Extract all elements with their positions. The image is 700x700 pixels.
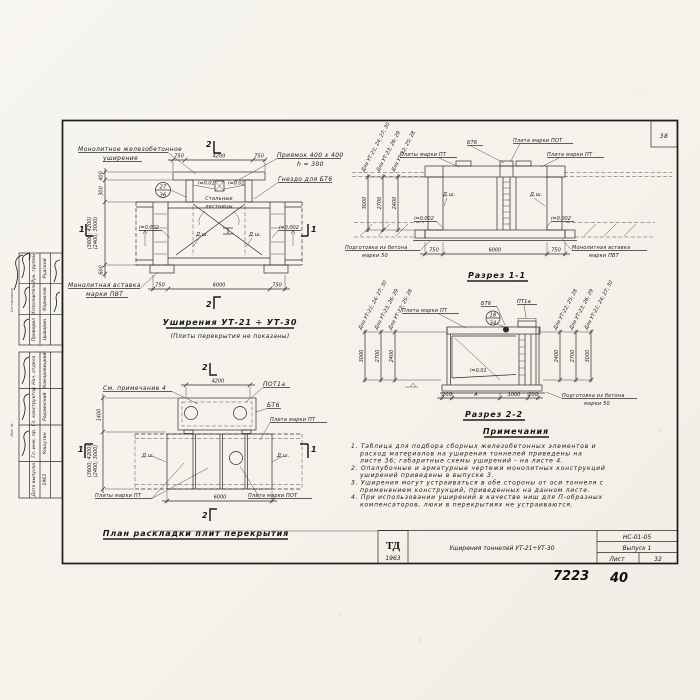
- callout-steel-stairs: Стальные: [205, 196, 233, 202]
- note-line-1b: расход материалов на уширения тоннелей п…: [359, 450, 583, 457]
- dim-bot-right: 750: [272, 283, 282, 289]
- dim-top-left: 750: [174, 154, 184, 160]
- elevation-title: Уширения УТ-21 ÷ УТ-30: [163, 318, 298, 327]
- margin-edge-label-2: Инв. №: [10, 423, 14, 436]
- s1-callout-insert: Монолитная вставка: [572, 245, 630, 251]
- s1-rot-value-2: 2400: [392, 197, 398, 210]
- callout-monolithic-widening: Монолитное железобетонное: [78, 146, 182, 153]
- note-line-2b: уширений приведены в выпуске 3.: [359, 472, 494, 479]
- s2-callout-prep-2: марки 50: [584, 401, 610, 407]
- s2-rot-value-right-0: 2400: [554, 350, 560, 363]
- s1-rot-value-1: 2700: [377, 197, 383, 210]
- s2-detail-num: 18: [490, 313, 497, 319]
- joint-arrow-left: [143, 230, 147, 246]
- s1-callout-insert-2: марки ПВТ: [589, 253, 620, 259]
- signature-mark: [54, 292, 60, 312]
- signature-mark: [14, 255, 23, 290]
- plan-dim-top: 4200: [212, 379, 225, 385]
- bt6-anchor: [503, 327, 509, 333]
- s1-joint-right: Д.ш.: [529, 192, 542, 198]
- section-2-2-title: Разрез 2-2: [465, 410, 523, 419]
- margin-stamp: [14, 253, 62, 498]
- dim-v3a: (2400; 3000): [93, 217, 99, 250]
- s1-dim-bot-right: 750: [551, 248, 561, 254]
- section-1-1-title: Разрез 1-1: [468, 271, 526, 280]
- note-line-1: 1. Таблица для подбора сборных железобет…: [351, 442, 596, 450]
- s1-callout-prep-2: марки 50: [362, 253, 388, 259]
- plan-mark-2-top: 2: [202, 363, 208, 372]
- signature-mark: [23, 319, 29, 340]
- plan-callout-pt-bottom: Плиты марки ПТ: [95, 493, 142, 499]
- s1-joint-left: Д.ш.: [442, 192, 455, 198]
- slope-pit-right: i=0.01: [228, 181, 245, 187]
- drawing-sheet: 38: [0, 0, 700, 700]
- s2-rot-label-left-0: Для УТ-21; 24; 27; 30: [357, 280, 389, 332]
- detail-bubble-sheet: 36: [160, 193, 167, 199]
- plan-dim-v1: 1400: [97, 409, 103, 422]
- logo-td: ТД: [386, 540, 401, 552]
- titleblock-issue: Выпуск 1: [623, 545, 652, 552]
- note-line-3b: применением конструкций, приведенных на …: [360, 487, 590, 494]
- section-mark-2-bottom: 2: [206, 300, 212, 309]
- note-line-4b: компенсаторов, люки в перекрытиях не уст…: [360, 501, 573, 508]
- s2-rot-value-right-1: 2700: [570, 350, 576, 363]
- callout-pit-2: h = 300: [297, 161, 324, 168]
- elevation-subtitle: (Плиты перекрытия не показаны): [170, 333, 289, 340]
- s1-slope-right: i=0.002: [551, 216, 571, 222]
- section-mark-1-left: 1: [79, 225, 85, 234]
- s1-callout-pt-right: Плита марки ПТ: [547, 152, 593, 158]
- slope-right: i=0.002: [279, 225, 299, 231]
- dim-v2: 300: [99, 186, 105, 196]
- section-mark-2-top: 2: [206, 140, 212, 149]
- plan-title: План раскладки плит перекрытия: [103, 529, 289, 538]
- s2-dim-2: А: [473, 392, 478, 398]
- stamp-name-7: 1963: [42, 474, 48, 486]
- stamp-role-1: Рук. группы: [31, 253, 37, 282]
- plan-joint-right: Д.ш.: [276, 453, 289, 459]
- s1-callout-pt-left: Плиты марки ПТ: [400, 152, 447, 158]
- stamp-role-5: Гл. конструктор: [31, 387, 37, 426]
- note-line-3: 3. Уширения могут устраиваться в обе сто…: [351, 479, 604, 487]
- plan-mark-1-left: 1: [78, 445, 84, 454]
- stamp-role-3: Проверил: [31, 318, 37, 342]
- s1-dim-bot-left: 750: [429, 248, 439, 254]
- s2-rot-value-right-2: 3000: [585, 350, 591, 363]
- callout-monolithic-insert-2: марки ПВТ: [86, 291, 124, 298]
- s2-rot-value-left-2: 2400: [389, 350, 395, 363]
- signature-mark: [54, 260, 60, 282]
- plan-mark-2-bottom: 2: [202, 511, 208, 520]
- s2-dim-3: 1000: [508, 392, 521, 398]
- dim-bot-mid: 6000: [213, 283, 226, 289]
- hand-number-1: 7223: [553, 569, 589, 584]
- s1-callout-prep: Подготовка из бетона: [345, 245, 408, 251]
- plan-callout-bt6: БТ6: [267, 402, 280, 409]
- titleblock-sheet-label: Лист: [608, 556, 625, 563]
- signature-mark: [22, 431, 29, 456]
- stamp-role-6: Гл. инж. пр.: [31, 429, 37, 458]
- s1-callout-pot: Плита марки ПОТ: [513, 138, 563, 144]
- note-line-4: 4. При использовании уширений в качестве…: [351, 493, 603, 501]
- stamp-name-4: Комаровицкий: [42, 352, 48, 388]
- s2-rot-value-left-0: 3000: [359, 350, 365, 363]
- plan-callout-note: См. примечание 4: [103, 385, 166, 392]
- signature-mark: [23, 287, 30, 308]
- s2-dim-1: 200: [442, 392, 452, 398]
- stamp-role-7: Дата выпуска: [31, 463, 37, 498]
- signature-mark: [22, 357, 29, 384]
- plan-callout-pot-bottom: Плита марки ПОТ: [248, 493, 298, 499]
- s2-rot-label-right-2: Для УТ-21; 24; 27; 30: [583, 280, 615, 332]
- detail-bubble-num: 27: [160, 185, 167, 191]
- stamp-name-3: Цыварин: [42, 319, 48, 341]
- note-line-2: 2. Опалубочные и арматурные чертежи моно…: [351, 464, 605, 472]
- stamp-name-2: Корнилов: [42, 287, 48, 311]
- s2-slope: i=0.01: [470, 368, 487, 374]
- stamp-role-2: Исполнитель: [31, 283, 37, 315]
- stamp-name-6: Кошутин: [42, 432, 48, 454]
- margin-edge-label-1: Согласовано: [10, 287, 14, 312]
- callout-monolithic-widening-2: уширение: [102, 155, 138, 162]
- stamp-role-4: Нач. отдела: [31, 355, 37, 384]
- s1-slope-left: i=0.002: [414, 216, 434, 222]
- joint-arrow-right: [291, 230, 295, 246]
- s2-rot-value-left-1: 2700: [375, 350, 381, 363]
- dim-bot-left: 750: [155, 283, 165, 289]
- callout-steel-stairs-2: лестницы: [204, 204, 232, 210]
- titleblock-title: Уширения тоннелей УТ-21÷УТ-30: [449, 545, 554, 552]
- slope-pit-left: i=0.01: [198, 181, 215, 187]
- stamp-name-1: Рудской: [42, 258, 48, 278]
- dim-v3b: (3600; 4200): [87, 217, 93, 250]
- s1-rot-value-0: 3000: [362, 197, 368, 210]
- dim-top-right: 750: [254, 154, 264, 160]
- s2-callout-prep: Подготовка из бетона: [562, 393, 625, 399]
- plan-dim-bottom: 6000: [214, 495, 227, 501]
- plan-dim-v2b: (3600; 4200): [87, 445, 93, 478]
- s2-callout-pt1a: ПТ1а: [517, 299, 531, 305]
- corner-number: 38: [660, 133, 668, 140]
- note-line-1c: листе 36; габаритные схемы уширений - на…: [359, 457, 563, 465]
- signature-mark: [22, 254, 30, 278]
- s2-dim-4: 200: [528, 392, 538, 398]
- titleblock-doc-code: НС-01-05: [623, 534, 651, 541]
- titleblock-sheet-number: 32: [654, 556, 662, 563]
- s1-callout-bt6: БТ6: [467, 140, 477, 146]
- plan-callout-pot1a: ПОТ1а: [263, 381, 285, 388]
- stamp-name-5: Радзинский: [42, 392, 48, 420]
- joint-label-left: Д.ш.: [195, 232, 208, 238]
- plan-mark-1-right: 1: [311, 445, 317, 454]
- dim-v1: 400: [99, 171, 105, 181]
- callout-monolithic-insert: Монолитная вставка: [68, 282, 141, 289]
- callout-pit: Приямок 400 x 400: [277, 152, 344, 159]
- s1-dim-bot-mid: 6000: [489, 248, 502, 254]
- plan-dim-v2a: (2400; 3000): [93, 445, 99, 478]
- logo-year: 1963: [385, 555, 400, 562]
- s2-detail-sheet: 34: [490, 321, 497, 327]
- dim-v4: 600: [99, 265, 105, 275]
- joint-label-right: Д.ш.: [248, 232, 261, 238]
- callout-socket-bt6: Гнездо для БТ6: [278, 176, 333, 183]
- s2-callout-bt6: БТ6: [481, 301, 491, 307]
- dim-top-mid: 4200: [213, 154, 226, 160]
- plan-callout-pt-right: Плита марки ПТ: [270, 417, 316, 423]
- notes-header: Примечания: [483, 427, 549, 436]
- plan-joint-left: Д.ш.: [141, 453, 154, 459]
- slope-left: i=0.002: [139, 225, 159, 231]
- hand-number-2: 40: [609, 571, 628, 586]
- signature-mark: [22, 394, 29, 420]
- s2-callout-pt: Плита марки ПТ: [402, 308, 448, 314]
- section-mark-1-right: 1: [311, 225, 317, 234]
